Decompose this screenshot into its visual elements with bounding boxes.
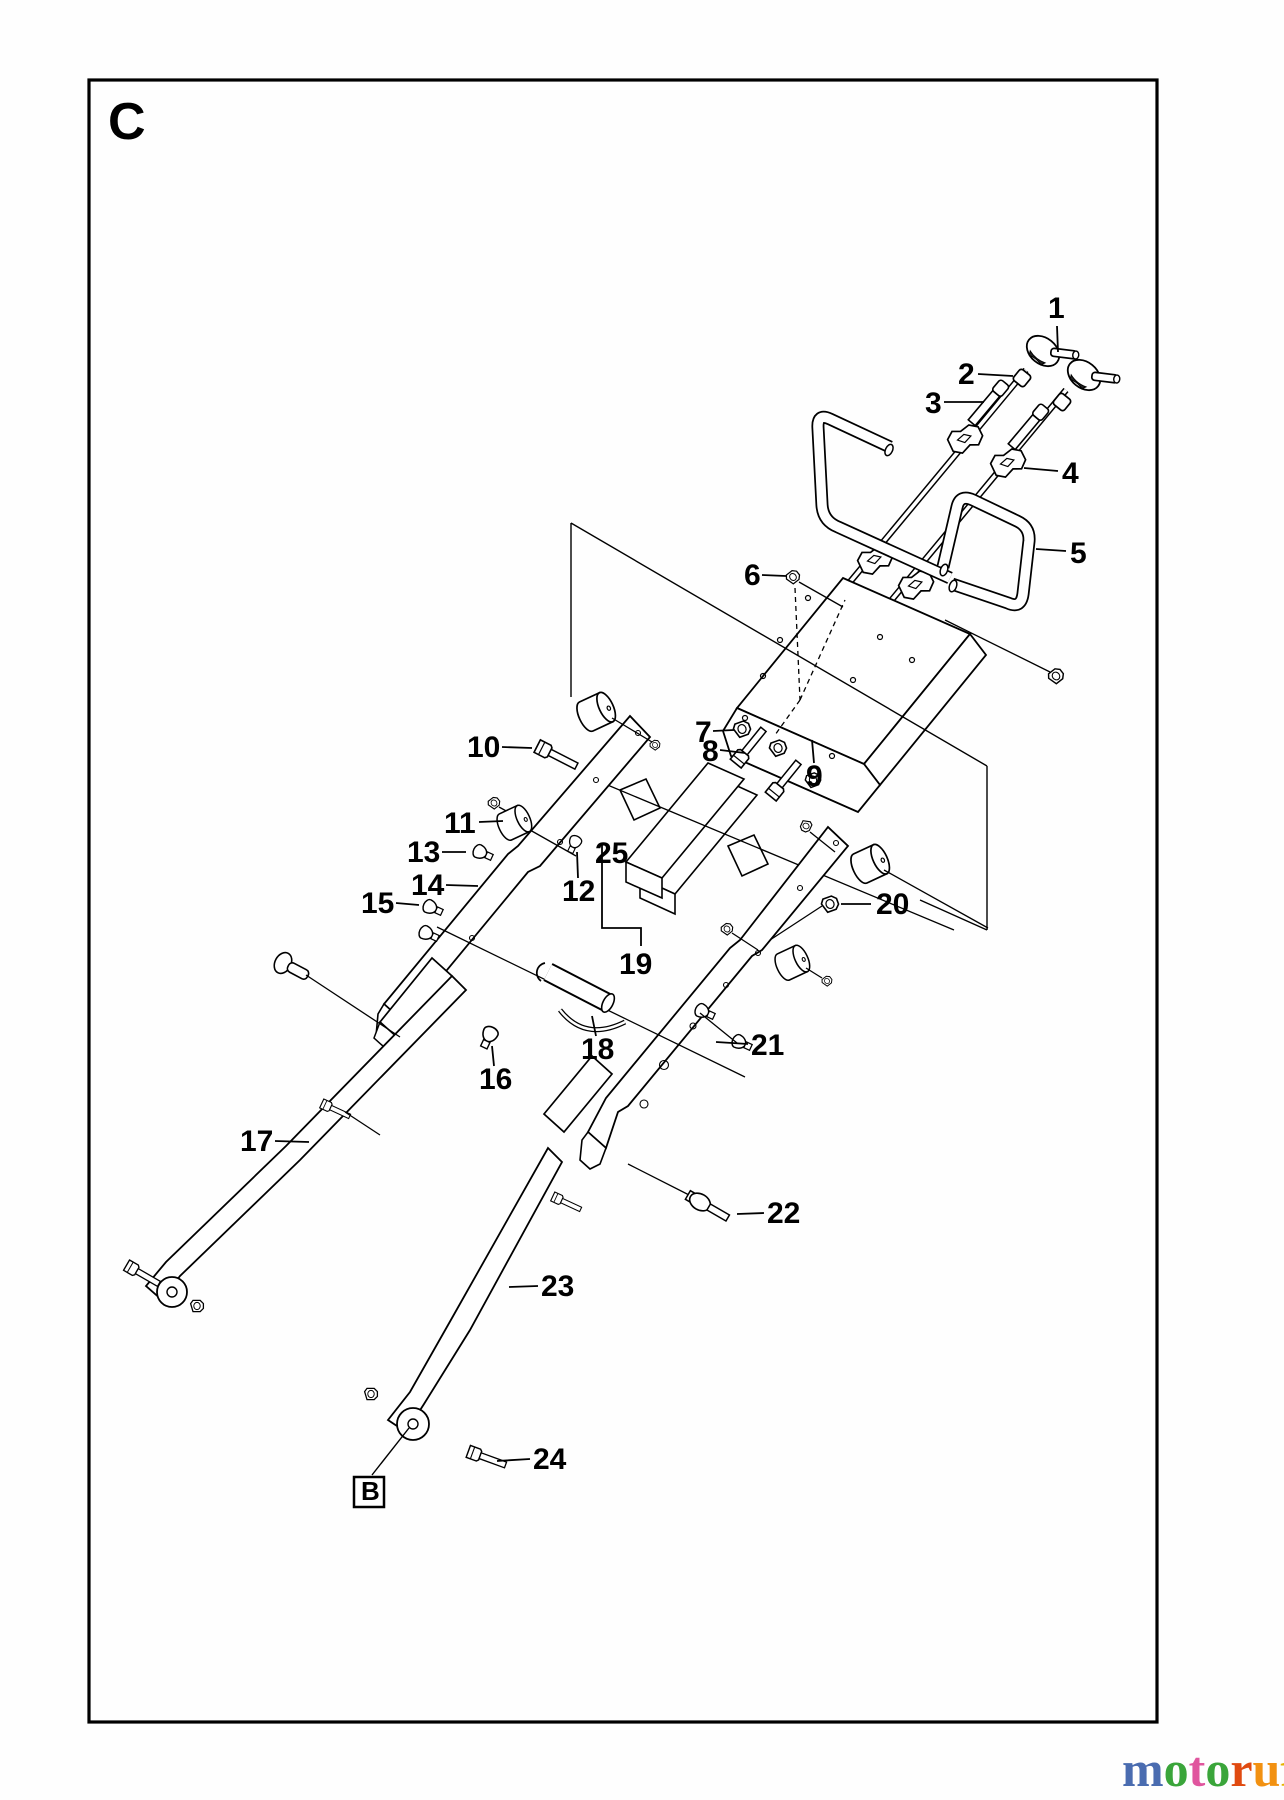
svg-text:24: 24 <box>533 1443 567 1476</box>
svg-text:12: 12 <box>562 875 595 908</box>
svg-text:4: 4 <box>1062 457 1079 490</box>
svg-text:motoruf.de: motoruf.de <box>1122 1741 1284 1797</box>
svg-text:1: 1 <box>1048 292 1065 325</box>
svg-text:16: 16 <box>479 1063 512 1096</box>
svg-text:20: 20 <box>876 888 909 921</box>
svg-text:B: B <box>361 1476 380 1506</box>
svg-text:9: 9 <box>806 760 823 793</box>
svg-text:25: 25 <box>595 837 628 870</box>
svg-text:11: 11 <box>444 807 476 840</box>
svg-text:2: 2 <box>958 358 975 391</box>
svg-text:17: 17 <box>240 1125 273 1158</box>
svg-text:5: 5 <box>1070 537 1087 570</box>
svg-text:21: 21 <box>751 1029 784 1062</box>
svg-text:C: C <box>108 93 146 151</box>
svg-text:19: 19 <box>619 948 652 981</box>
svg-text:10: 10 <box>467 731 500 764</box>
svg-text:18: 18 <box>581 1033 614 1066</box>
svg-text:15: 15 <box>361 887 394 920</box>
svg-text:14: 14 <box>411 869 445 902</box>
svg-text:8: 8 <box>702 735 719 768</box>
svg-text:22: 22 <box>767 1197 800 1230</box>
svg-text:13: 13 <box>407 836 440 869</box>
svg-text:6: 6 <box>744 559 761 592</box>
svg-text:3: 3 <box>925 387 942 420</box>
svg-text:23: 23 <box>541 1270 574 1303</box>
